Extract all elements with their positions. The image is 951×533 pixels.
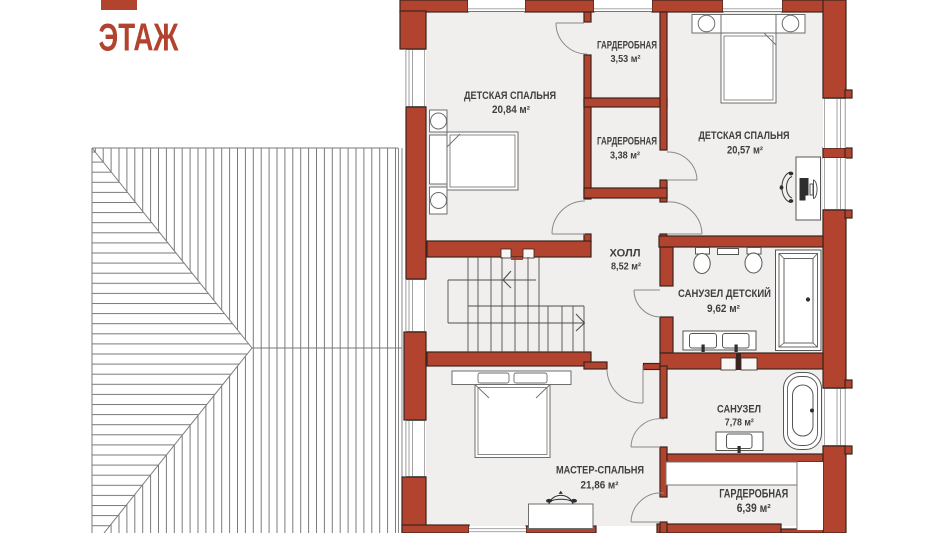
svg-text:ГАРДЕРОБНАЯ: ГАРДЕРОБНАЯ bbox=[597, 40, 657, 52]
svg-text:20,57 м²: 20,57 м² bbox=[727, 145, 763, 157]
svg-text:МАСТЕР-СПАЛЬНЯ: МАСТЕР-СПАЛЬНЯ bbox=[556, 465, 644, 477]
svg-text:ГАРДЕРОБНАЯ: ГАРДЕРОБНАЯ bbox=[719, 487, 788, 501]
svg-text:ГАРДЕРОБНАЯ: ГАРДЕРОБНАЯ bbox=[597, 136, 657, 148]
svg-text:САНУЗЕЛ: САНУЗЕЛ bbox=[717, 404, 761, 416]
svg-text:7,78 м²: 7,78 м² bbox=[725, 417, 754, 429]
svg-text:ДЕТСКАЯ СПАЛЬНЯ: ДЕТСКАЯ СПАЛЬНЯ bbox=[464, 90, 556, 102]
svg-text:ДЕТСКАЯ СПАЛЬНЯ: ДЕТСКАЯ СПАЛЬНЯ bbox=[699, 130, 790, 142]
svg-text:9,62 м²: 9,62 м² bbox=[707, 303, 740, 315]
svg-text:САНУЗЕЛ ДЕТСКИЙ: САНУЗЕЛ ДЕТСКИЙ bbox=[678, 287, 771, 300]
svg-text:21,86 м²: 21,86 м² bbox=[581, 480, 619, 492]
svg-text:6,39 м²: 6,39 м² bbox=[737, 503, 771, 515]
svg-text:3,53 м²: 3,53 м² bbox=[611, 53, 641, 65]
svg-text:ХОЛЛ: ХОЛЛ bbox=[610, 248, 641, 260]
svg-text:3,38 м²: 3,38 м² bbox=[610, 150, 640, 162]
svg-text:8,52 м²: 8,52 м² bbox=[611, 261, 641, 273]
svg-text:20,84 м²: 20,84 м² bbox=[492, 104, 530, 116]
svg-text:ЭТАЖ: ЭТАЖ bbox=[99, 17, 179, 60]
